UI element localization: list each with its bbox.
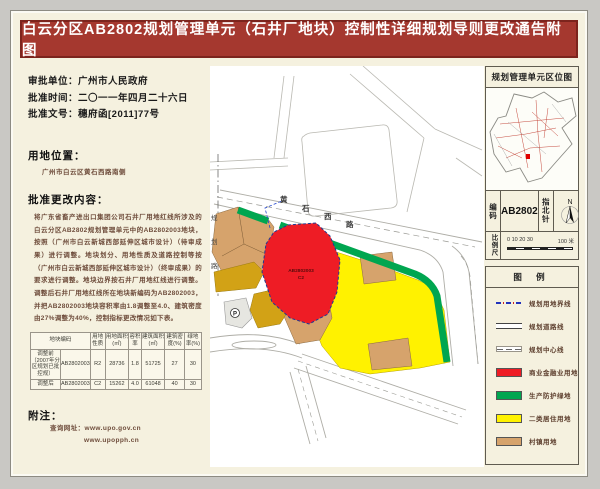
legend-label: 生产防护绿地 bbox=[529, 390, 571, 400]
minor-roads bbox=[210, 66, 482, 216]
approval-unit-row: 审批单位：广州市人民政府 bbox=[28, 74, 204, 91]
locator-map bbox=[486, 88, 578, 190]
approval-unit-label: 审批单位： bbox=[28, 76, 78, 87]
row-before-use: R2 bbox=[90, 349, 105, 380]
approval-date-row: 批准时间：二〇一一年四月二十六日 bbox=[28, 91, 204, 108]
row-before-green: 30 bbox=[184, 349, 201, 380]
locator-sketch bbox=[486, 88, 578, 190]
query-url-2: www.upopph.cn bbox=[84, 435, 204, 447]
center-line-symbol bbox=[496, 346, 522, 352]
change-content-section: 批准更改内容： 将广东省畜产进出口集团公司石井厂用地红线所涉及的白云分区AB28… bbox=[28, 192, 204, 326]
approval-date-value: 二〇一一年四月二十六日 bbox=[78, 93, 188, 104]
table-header-row: 地块编码 用地性质 用地面积(㎡) 容积率 建筑面积(㎡) 建筑密度(%) 绿地… bbox=[31, 332, 202, 349]
planning-notice-page: { "title": "白云分区AB2802规划管理单元（石井厂地块）控制性详细… bbox=[0, 0, 600, 489]
legend-box: 图 例 规划用地界线 规划道路线 规划中心线 商业金融业用地 bbox=[485, 266, 579, 465]
location-section: 用地位置： 广州市白云区黄石西路南侧 bbox=[28, 148, 204, 176]
row-after-far: 4.0 bbox=[129, 380, 142, 390]
parcel-village-inset-bottom bbox=[368, 338, 412, 370]
legend-heading: 图 例 bbox=[486, 267, 578, 288]
legend-label: 规划道路线 bbox=[529, 321, 564, 331]
legend-item-green: 生产防护绿地 bbox=[496, 390, 578, 400]
row-before-far: 1.8 bbox=[129, 349, 142, 380]
parcel-code-label: AB2802003 bbox=[288, 268, 314, 274]
road-line-symbol bbox=[496, 323, 522, 329]
col-land-area: 用地面积(㎡) bbox=[105, 332, 129, 349]
legend-label: 商业金融业用地 bbox=[529, 367, 578, 377]
location-heading: 用地位置： bbox=[28, 148, 204, 163]
compass-label: 指北针 bbox=[539, 191, 554, 231]
parking-label: P bbox=[233, 312, 237, 318]
row-after-gfa: 61048 bbox=[141, 380, 165, 390]
scale-bar bbox=[507, 247, 573, 250]
col-density: 建筑密度(%) bbox=[165, 332, 185, 349]
col-land-use: 用地性质 bbox=[90, 332, 105, 349]
row-after-area: 15262 bbox=[105, 380, 129, 390]
table-row: 调整后 AB2802003 C2 15262 4.0 61048 40 30 bbox=[31, 380, 202, 390]
col-green-rate: 绿地率(%) bbox=[184, 332, 201, 349]
location-text: 广州市白云区黄石西路南侧 bbox=[42, 166, 204, 176]
scale-label: 比例尺 bbox=[486, 232, 501, 259]
svg-text:划: 划 bbox=[211, 237, 218, 246]
query-url-1: www.upo.gov.cn bbox=[85, 425, 142, 432]
row-after-green: 30 bbox=[184, 380, 201, 390]
compass-icon: N bbox=[554, 191, 586, 231]
approval-doc-value: 穗府函[2011]77号 bbox=[78, 109, 160, 120]
svg-text:路: 路 bbox=[211, 261, 218, 270]
row-before-code: AB2802003 bbox=[61, 349, 91, 380]
scale-ticks: 0 10 20 30 bbox=[507, 237, 533, 245]
svg-text:西: 西 bbox=[324, 212, 332, 221]
zoning-map: P AB2802003 C2 黄 石 西 路 规 划 路 bbox=[210, 66, 484, 467]
locator-box: 规划管理单元区位图 bbox=[485, 66, 579, 191]
query-label: 查询网址： bbox=[50, 425, 85, 432]
village-swatch bbox=[496, 437, 522, 446]
indicator-table: 地块编码 用地性质 用地面积(㎡) 容积率 建筑面积(㎡) 建筑密度(%) 绿地… bbox=[30, 332, 202, 390]
south-road-centerline bbox=[298, 369, 318, 441]
scale-bar-cell: 0 10 20 30 100 米 bbox=[501, 232, 578, 259]
row-after-label: 调整后 bbox=[31, 380, 61, 390]
code-label: 编码 bbox=[486, 191, 501, 231]
legend-label: 二类居住用地 bbox=[529, 413, 571, 423]
boundary-line-symbol bbox=[496, 302, 522, 304]
unit-location-marker bbox=[526, 154, 530, 159]
scale-end: 100 米 bbox=[558, 237, 574, 245]
approval-doc-row: 批准文号：穗府函[2011]77号 bbox=[28, 107, 204, 124]
code-compass-box: 编码 AB2802 指北针 N 比例尺 0 10 20 30 bbox=[485, 190, 579, 260]
parcel-use-label: C2 bbox=[298, 275, 304, 281]
page-title: 白云分区AB2802规划管理单元（石井厂地块）控制性详细规划导则更改通告附图 bbox=[20, 20, 578, 58]
approval-date-label: 批准时间： bbox=[28, 93, 78, 104]
change-content-heading: 批准更改内容： bbox=[28, 192, 204, 207]
svg-text:路: 路 bbox=[346, 219, 354, 229]
legend-item-centerline: 规划中心线 bbox=[496, 344, 578, 354]
se-road-centerline bbox=[461, 256, 478, 364]
zoning-map-canvas: P AB2802003 C2 黄 石 西 路 规 划 路 bbox=[210, 66, 484, 469]
query-url-line: 查询网址：www.upo.gov.cn bbox=[50, 423, 204, 435]
legend-item-residential: 二类居住用地 bbox=[496, 413, 578, 423]
col-gfa: 建筑面积(㎡) bbox=[141, 332, 165, 349]
green-buffer-swatch bbox=[496, 391, 522, 400]
row-before-gfa: 51725 bbox=[141, 349, 165, 380]
legend-item-roadline: 规划道路线 bbox=[496, 321, 578, 331]
change-content-text: 将广东省畜产进出口集团公司石井厂用地红线所涉及的白云分区AB2802规划管理单元… bbox=[34, 212, 202, 326]
legend-item-boundary: 规划用地界线 bbox=[496, 298, 578, 308]
row-after-density: 40 bbox=[165, 380, 185, 390]
svg-text:黄: 黄 bbox=[280, 194, 288, 204]
unit-code: AB2802 bbox=[501, 191, 539, 231]
locator-title: 规划管理单元区位图 bbox=[486, 67, 578, 88]
row-before-density: 27 bbox=[165, 349, 185, 380]
approval-unit-value: 广州市人民政府 bbox=[78, 76, 148, 87]
legend-label: 规划中心线 bbox=[529, 344, 564, 354]
row-after-code: AB2802003 bbox=[61, 380, 91, 390]
sidebar: 规划管理单元区位图 编 bbox=[484, 66, 582, 467]
legend-item-commercial: 商业金融业用地 bbox=[496, 367, 578, 377]
col-parcel-code: 地块编码 bbox=[31, 332, 91, 349]
col-far: 容积率 bbox=[129, 332, 142, 349]
approval-doc-label: 批准文号： bbox=[28, 109, 78, 120]
residential-swatch bbox=[496, 414, 522, 423]
row-before-area: 28736 bbox=[105, 349, 129, 380]
legend-item-village: 村镇用地 bbox=[496, 436, 578, 446]
notice-sheet: 白云分区AB2802规划管理单元（石井厂地块）控制性详细规划导则更改通告附图 审… bbox=[10, 10, 588, 477]
notes-heading: 附注： bbox=[28, 408, 204, 423]
compass-n-label: N bbox=[567, 199, 572, 206]
table-row: 调整前（2007年分区规划已批控规） AB2802003 R2 28736 1.… bbox=[31, 349, 202, 380]
row-after-use: C2 bbox=[90, 380, 105, 390]
legend-items: 规划用地界线 规划道路线 规划中心线 商业金融业用地 生产防护绿地 bbox=[486, 288, 578, 446]
commercial-swatch bbox=[496, 368, 522, 377]
legend-label: 村镇用地 bbox=[529, 436, 557, 446]
svg-text:规: 规 bbox=[211, 213, 218, 222]
notes-section: 附注： 查询网址：www.upo.gov.cn www.upopph.cn bbox=[28, 408, 204, 448]
info-panel: 审批单位：广州市人民政府 批准时间：二〇一一年四月二十六日 批准文号：穗府函[2… bbox=[20, 66, 210, 467]
legend-label: 规划用地界线 bbox=[529, 298, 571, 308]
row-before-label: 调整前（2007年分区规划已批控规） bbox=[31, 349, 61, 380]
svg-text:石: 石 bbox=[301, 204, 310, 213]
